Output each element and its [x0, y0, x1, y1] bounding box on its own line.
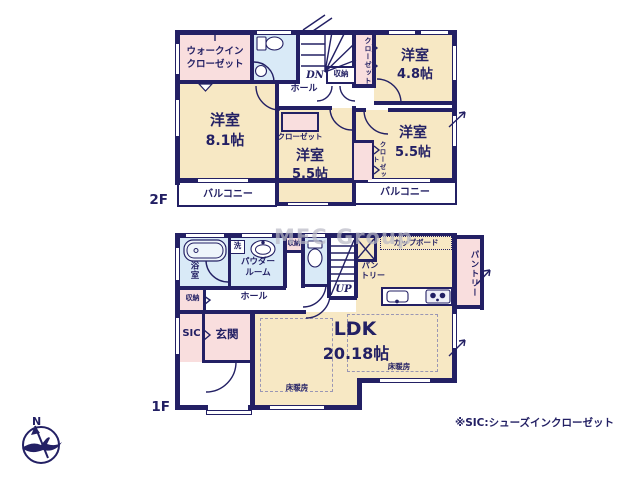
ldk-label: LDK [315, 320, 395, 340]
storage-west-label: 収納 [181, 295, 204, 302]
room-ne-size: 4.8帖 [380, 68, 450, 82]
window [452, 314, 457, 348]
floorplan-canvas: N ウォークイン クローゼット 洋室 4.8帖 洋室 8.1帖 洋室 5.5帖 … [0, 0, 640, 480]
window [270, 405, 324, 410]
watermark: MEC Group [274, 225, 413, 249]
room-ne-label: 洋室 [380, 49, 450, 64]
storage-2f-label: 収納 [326, 70, 356, 78]
door-arc [303, 284, 326, 307]
window [175, 100, 180, 136]
window [421, 30, 448, 35]
wall-segment [178, 310, 306, 314]
stairs-2f-treads [301, 32, 325, 72]
stairs-1f-treads [331, 246, 354, 281]
wall-segment [480, 235, 484, 310]
stairs-down-label: DN [302, 71, 328, 82]
wall-segment [202, 360, 254, 363]
window [452, 116, 457, 146]
floor-heating-b-label: 床暖房 [374, 363, 424, 371]
walk-in-closet-label-1: ウォークイン [180, 47, 250, 57]
window [452, 46, 457, 80]
entrance-label: 玄関 [204, 328, 250, 340]
floor-heating-a-label: 床暖房 [272, 384, 322, 392]
wall-segment [457, 305, 484, 309]
room-se-size: 5.5帖 [378, 146, 448, 160]
hall-2f-label: ホール [283, 85, 325, 94]
room-nw-size: 8.1帖 [185, 134, 265, 149]
powder-room-label-2: ルーム [234, 269, 282, 278]
room-nw-area [178, 84, 277, 180]
footnote-sic: ※SIC:シューズインクローゼット [455, 418, 635, 429]
wall-segment [356, 108, 366, 112]
door-arc [340, 86, 355, 101]
floor2-label: 2F [138, 193, 168, 207]
room-se-label: 洋室 [378, 126, 448, 141]
compass-north-label: N [32, 415, 41, 428]
kitchen-counter [381, 287, 453, 306]
wall-segment [301, 284, 329, 287]
sic-label: SIC [180, 329, 203, 340]
wall-segment [275, 80, 279, 206]
room-center-size: 5.5帖 [275, 168, 345, 182]
wall-segment [388, 108, 457, 112]
closet-center-label: クローゼット [276, 133, 324, 141]
wall-segment [175, 405, 362, 410]
pantry-north-label-2: トリー [354, 272, 392, 280]
window [175, 248, 180, 280]
wall-segment [178, 286, 286, 290]
bathroom-label: 浴室 [185, 254, 198, 286]
window [186, 233, 224, 238]
hall-1f-label: ホール [233, 293, 275, 302]
window [198, 178, 248, 183]
wall-segment [372, 30, 376, 88]
walk-in-closet-label-2: クローゼット [180, 60, 250, 70]
window [242, 233, 272, 238]
closet-se-label: クローゼット [374, 138, 385, 182]
floor1-label: 1F [140, 400, 170, 414]
wall-segment [279, 106, 332, 110]
toilet-2f-area [252, 33, 298, 84]
window [288, 202, 328, 206]
window [257, 30, 291, 35]
entrance-step [206, 410, 252, 415]
window [380, 378, 430, 383]
window [389, 30, 415, 35]
ldk-size: 20.18帖 [310, 346, 402, 363]
wall-segment [357, 383, 362, 410]
pantry-east-label: パントリー [461, 243, 478, 305]
laundry-label: 洗 [230, 242, 245, 250]
wall-segment [296, 33, 300, 84]
room-center-label: 洋室 [275, 149, 345, 164]
closet-ne-label: クローゼット [358, 36, 371, 86]
wall-segment [374, 101, 457, 105]
pantry-north-label-1: パン [352, 262, 388, 270]
closet-center-box [281, 112, 319, 132]
stairs-up-label: UP [331, 285, 356, 296]
powder-room-label-1: パウダー [234, 258, 282, 267]
wall-segment [250, 33, 254, 82]
compass-icon: N [22, 415, 62, 463]
wall-segment [329, 296, 357, 300]
door-arc [206, 362, 236, 392]
balcony-west-label: バルコニー [195, 190, 261, 201]
closet-se-box [354, 143, 372, 180]
balcony-east-label: バルコニー [372, 188, 438, 199]
room-nw-label: 洋室 [185, 113, 265, 129]
